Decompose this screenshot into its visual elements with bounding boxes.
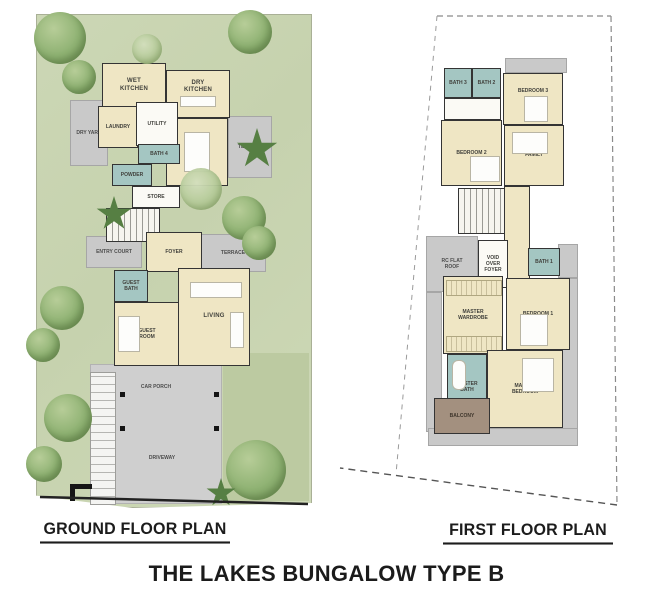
family-sofa xyxy=(512,132,548,154)
bedroom2-bed xyxy=(470,156,500,182)
rc-flat-roof-label: RC FLAT ROOF xyxy=(437,257,467,272)
master-bed xyxy=(522,358,554,392)
room-store: STORE xyxy=(132,186,180,208)
room-bath4: BATH 4 xyxy=(138,144,180,164)
car-porch-label: CAR PORCH xyxy=(140,383,172,391)
store-label: STORE xyxy=(146,193,165,201)
master-wardrobe-label: MASTER WARDROBE xyxy=(454,308,492,323)
floor-plan-sheet: DRY YARD TERRACE ENTRY COURT TERRACE CAR… xyxy=(0,0,653,600)
roof-strip-right xyxy=(558,244,578,278)
wardrobe-cabinets xyxy=(446,280,502,296)
first-floor-boundary-bottom xyxy=(340,468,617,505)
driveway-label: DRIVEWAY xyxy=(148,454,176,462)
porch-column xyxy=(120,426,125,431)
tree xyxy=(226,440,286,500)
living-sofa-side xyxy=(230,312,244,348)
bath-hall xyxy=(444,98,501,120)
void-over-foyer-label: VOID OVER FOYER xyxy=(482,254,504,275)
bedroom3-bed xyxy=(524,96,548,122)
first-floor-staircase xyxy=(458,188,506,234)
tree xyxy=(62,60,96,94)
laundry-label: LAUNDRY xyxy=(105,123,131,131)
terrace-lower-label: TERRACE xyxy=(220,249,246,257)
room-bath2: BATH 2 xyxy=(472,68,501,98)
tree xyxy=(26,328,60,362)
bathtub xyxy=(452,360,466,390)
room-laundry: LAUNDRY xyxy=(98,106,138,148)
balcony-label: BALCONY xyxy=(449,412,476,420)
room-utility: UTILITY xyxy=(136,102,178,146)
ground-floor-caption: GROUND FLOOR PLAN xyxy=(40,520,230,543)
room-guest-bath: GUEST BATH xyxy=(114,270,148,302)
room-bath1: BATH 1 xyxy=(528,248,560,276)
powder-label: POWDER xyxy=(120,171,145,179)
bath2-label: BATH 2 xyxy=(477,79,497,87)
tree xyxy=(132,34,162,64)
bath1-label: BATH 1 xyxy=(534,258,554,266)
kitchen-island xyxy=(180,96,216,107)
entry-court-label: ENTRY COURT xyxy=(95,248,133,256)
tree xyxy=(44,394,92,442)
bedroom3-label: BEDROOM 3 xyxy=(517,87,549,95)
bath3-label: BATH 3 xyxy=(448,79,468,87)
tree xyxy=(40,286,84,330)
tree xyxy=(34,12,86,64)
first-floor-caption: FIRST FLOOR PLAN xyxy=(443,521,613,544)
tree xyxy=(26,446,62,482)
room-powder: POWDER xyxy=(112,164,152,186)
bath4-label: BATH 4 xyxy=(149,150,169,158)
tree xyxy=(228,10,272,54)
dining-table xyxy=(184,132,210,172)
tree xyxy=(242,226,276,260)
bedroom1-bed xyxy=(520,314,548,346)
porch-column xyxy=(214,392,219,397)
car-porch-side-trellis xyxy=(90,372,116,505)
sheet-title: THE LAKES BUNGALOW TYPE B xyxy=(0,561,653,587)
living-label: LIVING xyxy=(202,312,225,322)
first-floor-boundary-right xyxy=(611,16,617,505)
room-foyer: FOYER xyxy=(146,232,202,272)
roof-ledge-top xyxy=(505,58,567,73)
tree xyxy=(180,168,222,210)
site-gate xyxy=(70,489,75,501)
living-sofa xyxy=(190,282,242,298)
room-balcony: BALCONY xyxy=(434,398,490,434)
porch-column xyxy=(120,392,125,397)
foyer-label: FOYER xyxy=(164,248,183,256)
utility-label: UTILITY xyxy=(147,120,168,128)
guest-bed xyxy=(118,316,140,352)
guest-bath-label: GUEST BATH xyxy=(119,279,143,294)
room-bath3: BATH 3 xyxy=(444,68,472,98)
wet-kitchen-label: WET KITCHEN xyxy=(116,77,152,94)
porch-column xyxy=(214,426,219,431)
dry-kitchen-label: DRY KITCHEN xyxy=(180,79,216,96)
